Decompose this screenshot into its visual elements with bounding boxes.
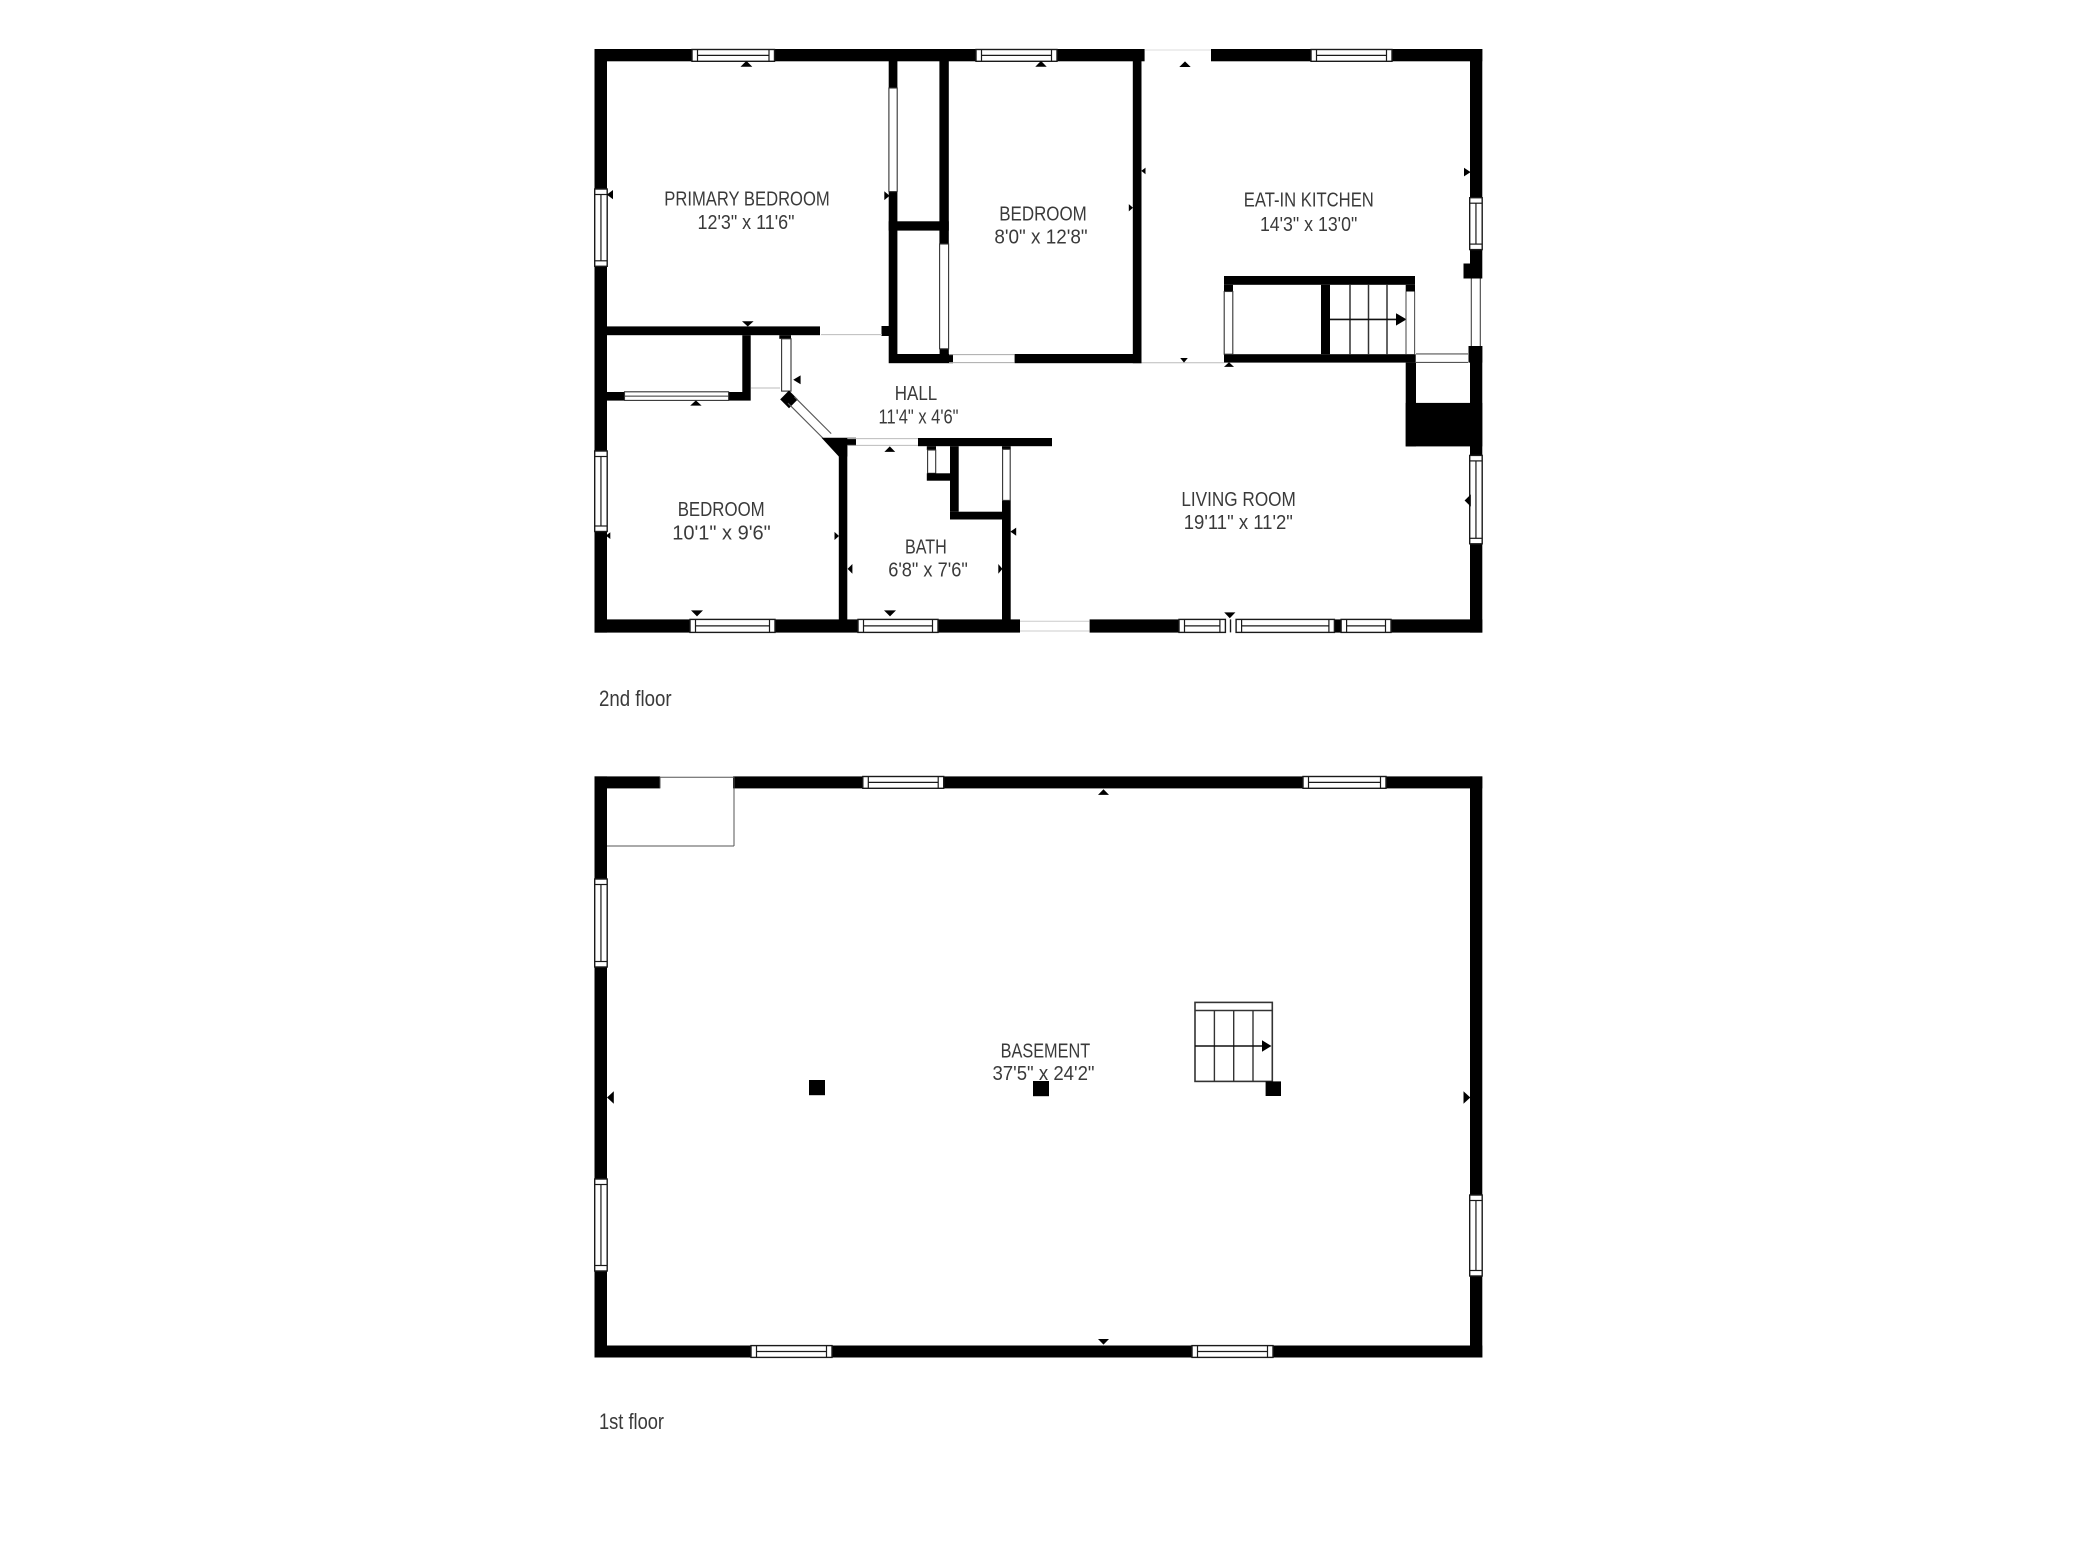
svg-text:19'11" x 11'2": 19'11" x 11'2" <box>1184 512 1293 534</box>
svg-text:37'5" x 24'2": 37'5" x 24'2" <box>992 1063 1094 1085</box>
svg-text:1st floor: 1st floor <box>599 1409 664 1434</box>
svg-text:BASEMENT: BASEMENT <box>1001 1041 1091 1063</box>
svg-text:LIVING ROOM: LIVING ROOM <box>1181 489 1296 511</box>
svg-text:6'8" x 7'6": 6'8" x 7'6" <box>888 560 968 582</box>
svg-text:2nd floor: 2nd floor <box>599 686 672 711</box>
svg-text:BATH: BATH <box>905 536 947 558</box>
svg-text:12'3" x 11'6": 12'3" x 11'6" <box>698 212 795 234</box>
svg-text:BEDROOM: BEDROOM <box>999 204 1087 226</box>
svg-text:PRIMARY BEDROOM: PRIMARY BEDROOM <box>664 189 829 211</box>
svg-text:EAT-IN KITCHEN: EAT-IN KITCHEN <box>1244 190 1374 212</box>
svg-text:HALL: HALL <box>895 383 937 405</box>
svg-text:BEDROOM: BEDROOM <box>678 499 765 521</box>
svg-text:11'4" x 4'6": 11'4" x 4'6" <box>879 407 959 429</box>
svg-text:8'0" x 12'8": 8'0" x 12'8" <box>994 227 1087 249</box>
svg-text:14'3" x 13'0": 14'3" x 13'0" <box>1260 214 1357 236</box>
svg-text:10'1" x 9'6": 10'1" x 9'6" <box>672 522 771 544</box>
